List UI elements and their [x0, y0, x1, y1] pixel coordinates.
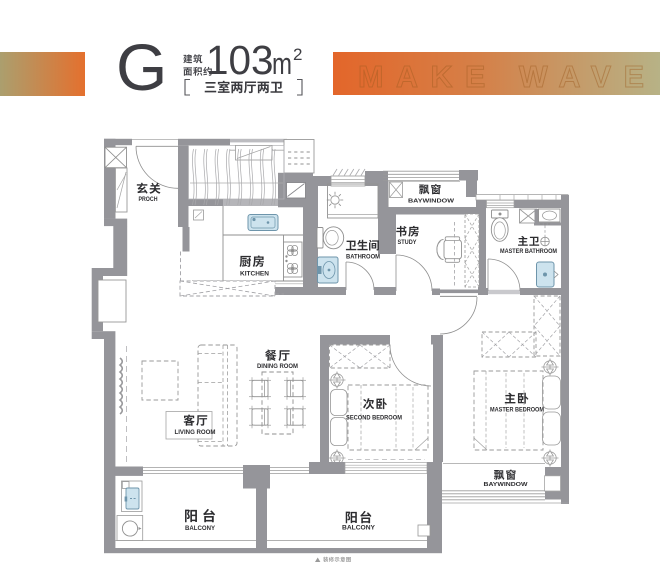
svg-text:BALCONY: BALCONY: [342, 524, 376, 531]
svg-text:STUDY: STUDY: [398, 239, 418, 246]
svg-text:2: 2: [293, 45, 302, 64]
svg-text:BAYWINDOW: BAYWINDOW: [408, 198, 455, 204]
svg-text:BAYWINDOW: BAYWINDOW: [484, 482, 529, 488]
svg-text:MASTER BEDROOM: MASTER BEDROOM: [490, 406, 544, 413]
svg-text:MASTER BATHROOM: MASTER BATHROOM: [500, 248, 557, 255]
svg-text:PROCH: PROCH: [139, 196, 158, 203]
svg-text:103: 103: [206, 37, 274, 83]
svg-text:MAKE WAVE: MAKE WAVE: [358, 60, 644, 94]
svg-text:SECOND BEDROOM: SECOND BEDROOM: [346, 414, 402, 421]
svg-text:m: m: [272, 46, 292, 81]
svg-text:KITCHEN: KITCHEN: [240, 270, 269, 277]
svg-text:LIVING ROOM: LIVING ROOM: [175, 429, 216, 436]
svg-text:G: G: [116, 30, 167, 104]
svg-text:BALCONY: BALCONY: [185, 525, 216, 532]
svg-text:BATHROOM: BATHROOM: [346, 253, 380, 260]
svg-text:DINING ROOM: DINING ROOM: [257, 363, 298, 370]
